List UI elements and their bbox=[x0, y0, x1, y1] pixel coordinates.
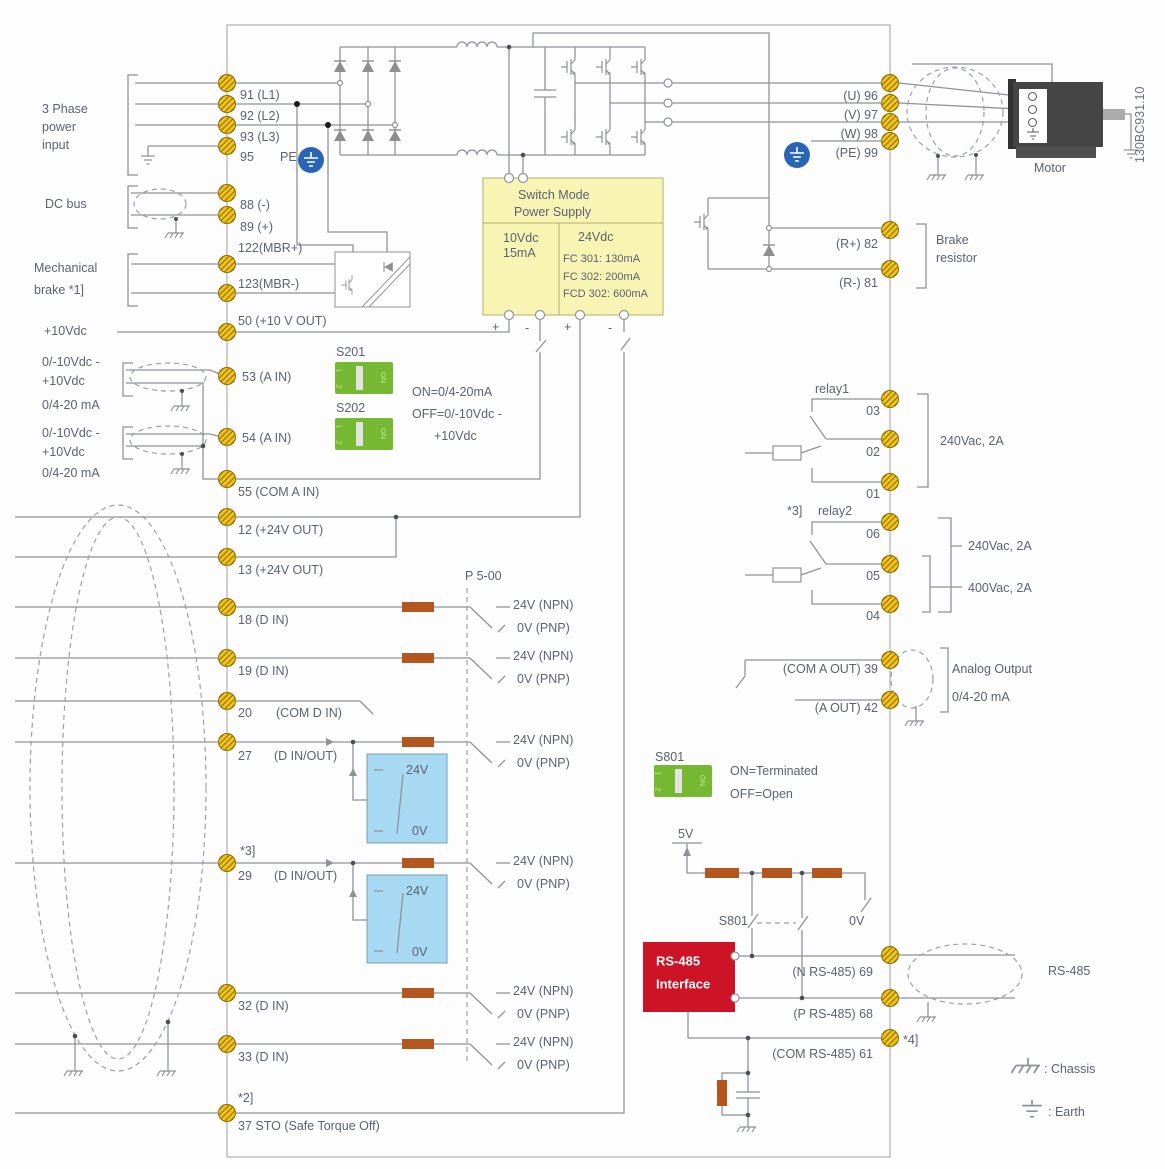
io29-0v: 0V bbox=[412, 945, 427, 959]
p500-label: P 5-00 bbox=[465, 569, 502, 583]
legend-earth-icon bbox=[1022, 1100, 1042, 1117]
terminal-99 bbox=[881, 132, 899, 150]
pe-label: PE bbox=[280, 150, 297, 164]
chassis-icon bbox=[165, 228, 184, 238]
legend-chassis-icon bbox=[1012, 1058, 1041, 1073]
s202-label: S202 bbox=[336, 401, 365, 415]
smps-10v-label: 10Vdc bbox=[503, 231, 538, 245]
t18-label: 18 (D IN) bbox=[238, 613, 289, 627]
t20-com-label: (COM D IN) bbox=[276, 706, 342, 720]
t123-label: 123(MBR-) bbox=[238, 277, 299, 291]
relay2-note-label: *3] bbox=[787, 504, 802, 518]
io29-24v: 24V bbox=[406, 884, 428, 898]
terminal-93 bbox=[218, 116, 236, 134]
power-input-label-2: power bbox=[42, 120, 76, 134]
t91-label: 91 (L1) bbox=[240, 88, 280, 102]
terminal-81 bbox=[881, 260, 899, 278]
r03-label: 03 bbox=[866, 404, 880, 418]
t97-label: (V) 97 bbox=[844, 108, 878, 122]
s801-switch-label: S801 bbox=[719, 914, 748, 928]
terminal-91 bbox=[218, 74, 236, 92]
ain53-range-1: 0/-10Vdc - bbox=[42, 355, 100, 369]
npn-19: 24V (NPN) bbox=[513, 649, 573, 663]
smps-pin-minus1: - bbox=[525, 321, 529, 335]
plus10v-label: +10Vdc bbox=[44, 324, 87, 338]
relay2-label: relay2 bbox=[818, 504, 852, 518]
5v-label: 5V bbox=[678, 827, 693, 841]
brake-resistor-label-1: Brake bbox=[936, 233, 969, 247]
power-input-label-1: 3 Phase bbox=[42, 102, 88, 116]
legend-chassis-label: : Chassis bbox=[1044, 1062, 1095, 1076]
terminal-53 bbox=[218, 367, 236, 385]
terminal-68 bbox=[881, 989, 899, 1007]
t98-label: (W) 98 bbox=[841, 127, 879, 141]
s201-on: ON bbox=[379, 372, 388, 383]
s201-pos2: 2 bbox=[335, 384, 344, 388]
relay2-rating240-label: 240Vac, 2A bbox=[968, 539, 1032, 553]
rectifier-diode-icon bbox=[334, 61, 346, 72]
smps-24v-label: 24Vdc bbox=[578, 230, 613, 244]
motor-terminal-box bbox=[1018, 88, 1048, 144]
t33-label: 33 (D IN) bbox=[238, 1050, 289, 1064]
terminal-05 bbox=[881, 555, 899, 573]
npn-29: 24V (NPN) bbox=[513, 854, 573, 868]
s202-slider bbox=[356, 422, 363, 446]
t88-label: 88 (-) bbox=[240, 198, 270, 212]
terminal-06 bbox=[881, 513, 899, 531]
t96-label: (U) 96 bbox=[843, 89, 878, 103]
earth-icon bbox=[141, 152, 155, 164]
t37-note-label: *2] bbox=[238, 1091, 253, 1105]
smps-15ma-label: 15mA bbox=[503, 246, 536, 260]
t29-note-label: *3] bbox=[240, 844, 255, 858]
t50-label: 50 (+10 V OUT) bbox=[238, 314, 327, 328]
terminal-88 bbox=[218, 184, 236, 202]
pnp-27: 0V (PNP) bbox=[517, 756, 570, 770]
ain54-range-2: +10Vdc bbox=[42, 445, 85, 459]
npn-33: 24V (NPN) bbox=[513, 1035, 573, 1049]
terminal-03 bbox=[881, 390, 899, 408]
t29-label: 29 bbox=[238, 869, 252, 883]
t92-label: 92 (L2) bbox=[240, 109, 280, 123]
terminal-01 bbox=[881, 473, 899, 491]
terminal-32 bbox=[218, 984, 236, 1002]
t99-label: (PE) 99 bbox=[836, 146, 878, 160]
terminal-37 bbox=[218, 1104, 236, 1122]
t93-label: 93 (L3) bbox=[240, 130, 280, 144]
relay2-rating400-label: 400Vac, 2A bbox=[968, 581, 1032, 595]
aout-label-2: 0/4-20 mA bbox=[952, 690, 1010, 704]
terminal-97 bbox=[881, 94, 899, 112]
t53-label: 53 (A IN) bbox=[242, 370, 291, 384]
t13-label: 13 (+24V OUT) bbox=[238, 563, 323, 577]
terminal-69 bbox=[881, 946, 899, 964]
io27-24v: 24V bbox=[406, 763, 428, 777]
npn-18: 24V (NPN) bbox=[513, 598, 573, 612]
motor-label: Motor bbox=[1034, 161, 1066, 175]
s801-on: ON bbox=[698, 775, 707, 786]
smps-pin-plus1: + bbox=[492, 320, 499, 334]
motor-shaft bbox=[1103, 109, 1125, 120]
s202-on: ON bbox=[379, 428, 388, 439]
brake-igbt-icon bbox=[694, 209, 709, 235]
t82-label: (R+) 82 bbox=[836, 237, 878, 251]
r01-label: 01 bbox=[866, 487, 880, 501]
smps-pin-plus2: + bbox=[564, 320, 571, 334]
s801-on-note: ON=Terminated bbox=[730, 764, 818, 778]
pe-terminal-out-icon bbox=[784, 142, 810, 168]
terminal-39 bbox=[881, 651, 899, 669]
terminal-95 bbox=[218, 137, 236, 155]
terminal-02 bbox=[881, 430, 899, 448]
power-input-label-3: input bbox=[42, 138, 69, 152]
ain54-range-1: 0/-10Vdc - bbox=[42, 426, 100, 440]
t42-label: (A OUT) 42 bbox=[815, 701, 878, 715]
rs485-box-label-2: Interface bbox=[656, 978, 710, 993]
terminal-92 bbox=[218, 95, 236, 113]
smps-pin-minus2: - bbox=[608, 321, 612, 335]
rs485-cable-label: RS-485 bbox=[1048, 964, 1090, 978]
terminal-33 bbox=[218, 1035, 236, 1053]
t20-label: 20 bbox=[238, 706, 252, 720]
terminal-89 bbox=[218, 206, 236, 224]
t69-label: (N RS-485) 69 bbox=[792, 965, 873, 979]
npn-32: 24V (NPN) bbox=[513, 984, 573, 998]
s202-pos2: 2 bbox=[335, 440, 344, 444]
t27-io-label: (D IN/OUT) bbox=[274, 749, 337, 763]
s201-label: S201 bbox=[336, 345, 365, 359]
brake-diode-icon bbox=[763, 245, 775, 256]
smps-fc302-label: FC 302: 200mA bbox=[563, 271, 640, 283]
smps-fcd302-label: FCD 302: 600mA bbox=[563, 288, 648, 300]
s801-pos1: 1 bbox=[654, 771, 663, 775]
smps-fc301-label: FC 301: 130mA bbox=[563, 253, 640, 265]
terminal-13 bbox=[218, 548, 236, 566]
terminal-18 bbox=[218, 598, 236, 616]
ain54-range-3: 0/4-20 mA bbox=[42, 466, 100, 480]
pnp-18: 0V (PNP) bbox=[517, 621, 570, 635]
pnp-29: 0V (PNP) bbox=[517, 877, 570, 891]
terminal-82 bbox=[881, 221, 899, 239]
s801-slider bbox=[675, 769, 682, 793]
legend-earth-label: : Earth bbox=[1048, 1105, 1085, 1119]
terminal-122 bbox=[218, 255, 236, 273]
r04-label: 04 bbox=[866, 609, 880, 623]
terminal-19 bbox=[218, 649, 236, 667]
motor-base bbox=[1016, 147, 1096, 158]
t61-label: (COM RS-485) 61 bbox=[772, 1047, 873, 1061]
s20x-off-note-2: +10Vdc bbox=[434, 429, 477, 443]
wiring-diagram: 3 Phase power input DC bus Mechanical br… bbox=[0, 0, 1165, 1169]
terminal-98 bbox=[881, 113, 899, 131]
mech-brake-label-2: brake *1] bbox=[34, 283, 84, 297]
smps-title-2: Power Supply bbox=[514, 205, 591, 219]
t68-label: (P RS-485) 68 bbox=[793, 1007, 873, 1021]
inverter-igbt-icon bbox=[561, 54, 576, 80]
ain53-range-3: 0/4-20 mA bbox=[42, 398, 100, 412]
terminal-50 bbox=[218, 323, 236, 341]
terminal-12 bbox=[218, 508, 236, 526]
rs485-box-label-1: RS-485 bbox=[656, 955, 700, 970]
s801-pos2: 2 bbox=[654, 787, 663, 791]
terminal-29 bbox=[218, 854, 236, 872]
npn-27: 24V (NPN) bbox=[513, 733, 573, 747]
r06-label: 06 bbox=[866, 527, 880, 541]
t89-label: 89 (+) bbox=[240, 220, 273, 234]
0v-label: 0V bbox=[849, 914, 864, 928]
resistors bbox=[402, 602, 842, 1106]
t37-label: 37 STO (Safe Torque Off) bbox=[238, 1119, 380, 1133]
s201-pos1: 1 bbox=[335, 368, 344, 372]
aout-label-1: Analog Output bbox=[952, 662, 1032, 676]
s202-pos1: 1 bbox=[335, 424, 344, 428]
terminal-20 bbox=[218, 692, 236, 710]
io27-0v: 0V bbox=[412, 824, 427, 838]
s201-slider bbox=[356, 366, 363, 390]
mech-brake-module bbox=[335, 252, 410, 307]
t12-label: 12 (+24V OUT) bbox=[238, 523, 323, 537]
r02-label: 02 bbox=[866, 445, 880, 459]
pnp-33: 0V (PNP) bbox=[517, 1058, 570, 1072]
pnp-19: 0V (PNP) bbox=[517, 672, 570, 686]
t122-label: 122(MBR+) bbox=[238, 241, 302, 255]
t39-label: (COM A OUT) 39 bbox=[783, 662, 878, 676]
terminal-27 bbox=[218, 733, 236, 751]
pe-terminal-icon bbox=[298, 147, 324, 173]
mech-brake-label-1: Mechanical bbox=[34, 261, 97, 275]
t27-label: 27 bbox=[238, 749, 252, 763]
relay1-rating-label: 240Vac, 2A bbox=[940, 434, 1004, 448]
terminal-04 bbox=[881, 595, 899, 613]
relay1-label: relay1 bbox=[815, 382, 849, 396]
s20x-off-note-1: OFF=0/-10Vdc - bbox=[412, 407, 502, 421]
s801-label: S801 bbox=[655, 750, 684, 764]
brake-resistor-label-2: resistor bbox=[936, 251, 977, 265]
t54-label: 54 (A IN) bbox=[242, 431, 291, 445]
s801-off-note: OFF=Open bbox=[730, 787, 793, 801]
terminal-61 bbox=[881, 1029, 899, 1047]
ain53-range-2: +10Vdc bbox=[42, 374, 85, 388]
drawing-number: 130BC931.10 bbox=[1133, 87, 1147, 163]
terminal-123 bbox=[218, 284, 236, 302]
t29-io-label: (D IN/OUT) bbox=[274, 869, 337, 883]
t95-label: 95 bbox=[240, 150, 254, 164]
pnp-32: 0V (PNP) bbox=[517, 1007, 570, 1021]
t32-label: 32 (D IN) bbox=[238, 999, 289, 1013]
dc-bus-label: DC bus bbox=[45, 197, 87, 211]
t81-label: (R-) 81 bbox=[839, 276, 878, 290]
terminal-96 bbox=[881, 74, 899, 92]
r05-label: 05 bbox=[866, 569, 880, 583]
terminal-42 bbox=[881, 691, 899, 709]
t19-label: 19 (D IN) bbox=[238, 664, 289, 678]
terminal-55 bbox=[218, 470, 236, 488]
t61-note-label: *4] bbox=[903, 1033, 918, 1047]
s20x-on-note: ON=0/4-20mA bbox=[412, 385, 492, 399]
t55-label: 55 (COM A IN) bbox=[238, 485, 319, 499]
smps-title-1: Switch Mode bbox=[518, 188, 590, 202]
terminal-54 bbox=[218, 428, 236, 446]
